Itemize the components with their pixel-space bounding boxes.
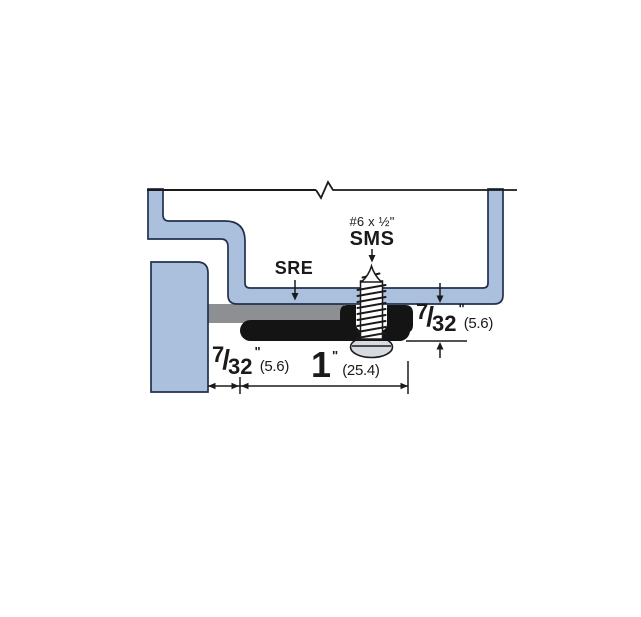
dimension-metric: (5.6) — [464, 316, 493, 331]
dimension-slash: / — [426, 303, 434, 331]
dimension-inch-mark: " — [332, 349, 338, 362]
dimension-inch-mark: " — [459, 302, 465, 315]
frame-stop-block — [151, 262, 208, 392]
dimension-seal-projection: 7 / 32 " (5.6) — [416, 301, 493, 335]
dimension-inch-mark: " — [255, 345, 261, 358]
seal-name-label: SRE — [272, 259, 316, 277]
break-line-right — [316, 182, 517, 198]
dimension-metric: (5.6) — [260, 359, 289, 374]
dimension-edge-gap: 7 / 32 " (5.6) — [212, 344, 289, 378]
diagram-drawing — [0, 0, 641, 617]
screw-type-label: SMS — [324, 229, 420, 249]
dimension-seal-width: 1 " (25.4) — [311, 347, 380, 383]
dimension-value: 1 — [311, 347, 331, 383]
screw-size-label: #6 x ½" — [324, 215, 420, 228]
dimension-denominator: 32 — [432, 313, 456, 335]
sms-callout-arrow — [369, 249, 376, 263]
dimension-metric: (25.4) — [342, 363, 379, 378]
dimension-slash: / — [222, 346, 230, 374]
sre-seal-cross-section-diagram: #6 x ½" SMS SRE 7 / 32 " (5.6) 7 / 32 " … — [0, 0, 641, 617]
dimension-denominator: 32 — [228, 356, 252, 378]
